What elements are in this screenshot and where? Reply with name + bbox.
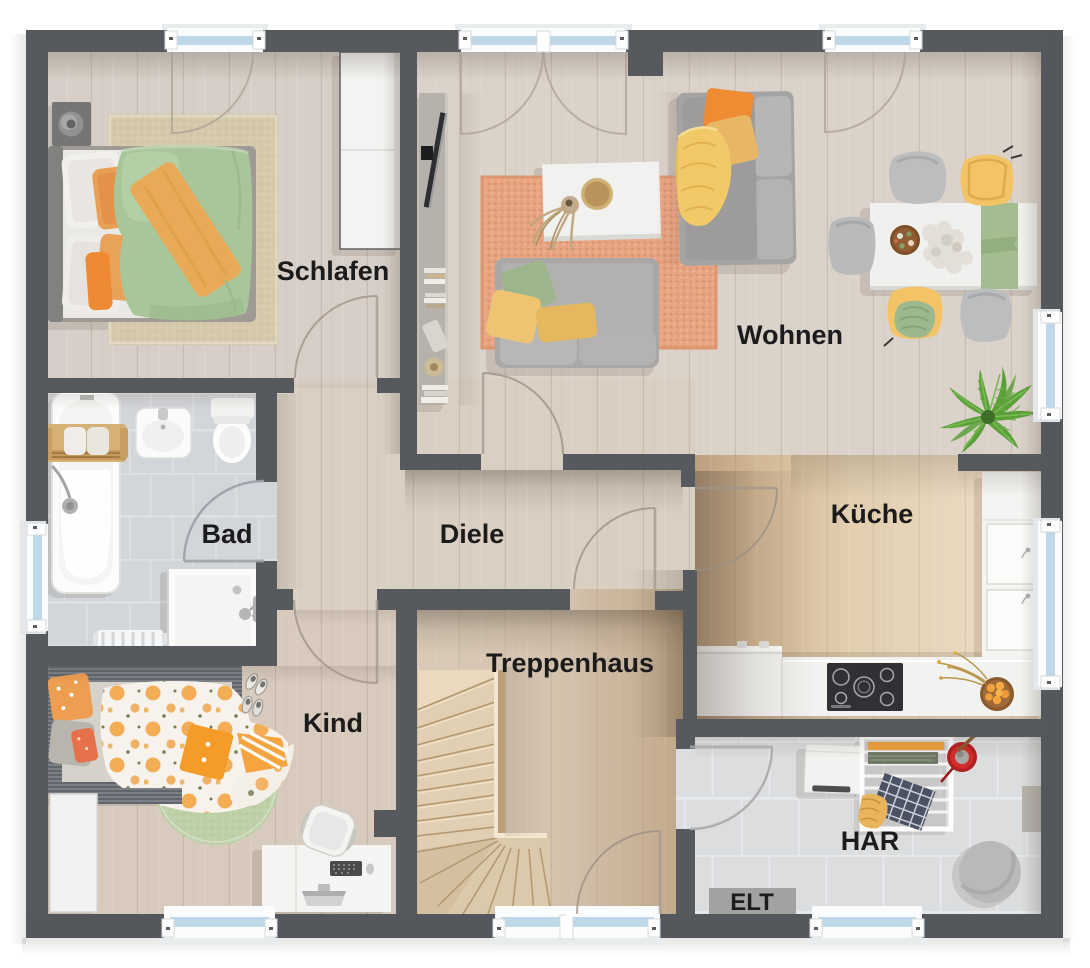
svg-text:Wohnen: Wohnen [737, 320, 843, 350]
svg-text:Treppenhaus: Treppenhaus [486, 648, 654, 678]
svg-text:Kind: Kind [303, 708, 363, 738]
svg-text:Schlafen: Schlafen [277, 256, 390, 286]
svg-text:Küche: Küche [831, 499, 914, 529]
svg-text:Diele: Diele [440, 519, 505, 549]
svg-text:HAR: HAR [841, 826, 900, 856]
svg-text:Bad: Bad [201, 519, 252, 549]
svg-text:ELT: ELT [730, 889, 774, 916]
